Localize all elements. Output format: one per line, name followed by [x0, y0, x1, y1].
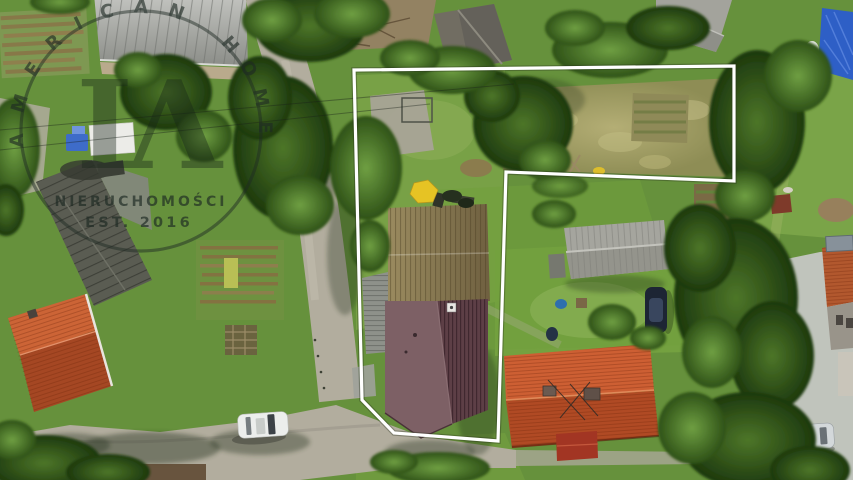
plot-barn-tan-roof	[388, 192, 490, 303]
aerial-photo-container: AMERICAN HOME IΛ NIERUCHOMOŚCI EST. 2016	[0, 0, 853, 480]
watermark-established: EST. 2016	[85, 215, 193, 231]
chimney	[543, 386, 556, 396]
red-shed	[556, 431, 598, 461]
dirt-spot	[818, 198, 853, 222]
bin	[546, 327, 558, 341]
solar-panel	[826, 235, 853, 251]
watermark-monogram: IΛ	[76, 53, 224, 197]
blue-barrel	[555, 299, 567, 309]
pergola	[225, 325, 257, 355]
bright-crop-patch	[224, 258, 238, 288]
aerial-photo: AMERICAN HOME IΛ NIERUCHOMOŚCI EST. 2016	[0, 0, 853, 480]
chimney	[584, 388, 600, 400]
side-shed	[548, 253, 566, 278]
wood-pile	[460, 159, 492, 177]
watermark-subtitle: NIERUCHOMOŚCI	[55, 192, 228, 210]
